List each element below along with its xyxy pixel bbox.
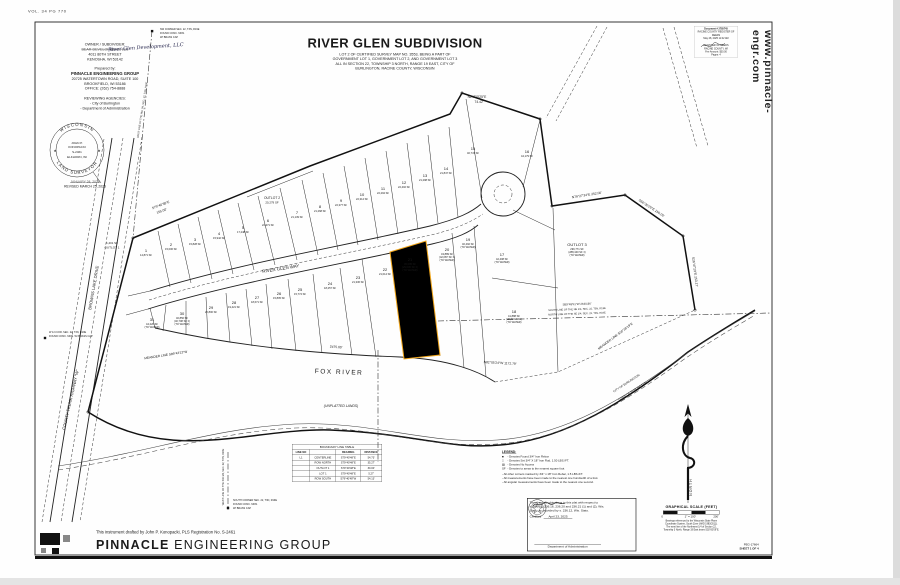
lot-area: (TO WATER) [439,258,454,262]
map-label: FOUND CONC. MON. W/ BRASS CAP [49,335,93,338]
seal-date-original: JANUARY 28, 2025 [70,180,99,184]
lot-number: 23 [356,275,361,280]
scale-label-end: 200' [713,515,718,518]
map-label: NORTH LINE OF THE SE 1/4, SEC. 22, T3N, … [548,311,606,316]
lot-number: 21 [408,257,413,262]
footer-company-name: PINNACLE ENGINEERING GROUP [96,538,331,552]
lot-area: (TO WATER) [144,325,159,329]
map-label: FOUND CONC. MON. [160,32,185,35]
street-river-glen-way: RIVER GLEN WAY [262,263,300,274]
lot-number: 12 [402,180,407,185]
svg-text:LAND SURVEYOR: LAND SURVEYOR [56,160,99,175]
lot-number: 1 [145,248,148,253]
seal-number-line: S-2461 [72,150,82,154]
lot-number: 30 [180,311,185,316]
lot-area: (TO WATER) [494,260,509,264]
lot-number: 8 [319,204,322,209]
cell-bearing: S79°40'48"W [336,476,361,481]
lot-area: 21,268 SF [314,209,326,213]
lot-area: (TO WATER) [174,322,189,326]
lot-number: 24 [328,281,333,286]
lot-area: 14,871 SF [140,253,152,257]
map-label: W/ BRASS CAP [233,507,251,510]
lot-area: (TO WATER) [460,245,475,249]
pinnacle-logo [41,548,46,553]
map-label: FOUND CONC. MON. [233,503,258,506]
stamp-line: Pages: 4 [695,53,737,56]
lot-area: 21,014 SF [379,272,391,276]
lot-area: (TO WATER) [506,320,521,324]
scale-label-mid: 1" = 100' [685,515,696,518]
lot-labels: 114,871 SF215,006 SF315,828 SF415,942 SF… [140,146,587,329]
outlot-1-area: 1,401 SF [106,241,118,245]
cell-line-no [292,476,310,481]
map-label: S89°49'51"W 2640.86' [562,301,591,306]
scale-title: GRAPHICAL SCALE (FEET) [648,505,735,509]
map-label: S56°30'20"E 250.00' [638,198,666,218]
lot-number: 22 [383,267,388,272]
plat-sheet: VOL. 34 PG 770 [0,0,900,585]
lot-number: 27 [255,295,260,300]
lot-area: 21,298 SF [419,178,431,182]
lot-number: 20 [445,247,450,252]
lot-number: 11 [381,186,386,191]
lot-number: OUTLOT 3 [567,242,587,247]
street-browns-lake-drive: BROWNS LAKE DRIVE [87,265,100,310]
lot-area: 21,139 SF [291,215,303,219]
lot-area: (TO WATER) [569,253,584,257]
lot-number: 14 [444,166,449,171]
lot-number: 3 [194,237,197,242]
lot-area: 44,179 SF [521,154,533,158]
map-label: N79°27'34"E 252.00' [572,191,603,200]
lot-number: 6 [267,218,270,223]
seal-name-line: KONOPACKI [68,145,86,149]
map-label: N82°05'24"W 1172.79' [484,360,517,366]
lot-number: 15 [471,146,476,151]
lot-number: 26 [277,291,282,296]
section-monument-icon [44,337,46,339]
cell-name: ROW SOUTH [310,476,336,481]
outlot-1-label: OUTLOT 1 [104,246,119,250]
pinnacle-logo [63,535,70,542]
map-label: W/ BRASS CAP [160,36,178,39]
pinnacle-logo [40,533,60,545]
table-row: ROW SOUTHS79°40'48"W54.13' [292,476,382,481]
lot-number: 18 [512,309,517,314]
lot-area: 20,800 SF [205,310,217,314]
lot-number: 25 [298,287,303,292]
lot-number: 13 [423,173,428,178]
south-corner-note: SOUTH CORNER SEC. 22, T3N, R19E [233,499,277,502]
lot-area: 15,006 SF [165,247,177,251]
seal-star-icon: ★ [53,149,56,153]
sheet-number: SHEET 1 OF 4 [702,547,759,551]
lot-number: 17 [500,252,505,257]
cert-department: Department of Administration [534,544,601,548]
lot-number: 10 [360,192,365,197]
lot-number: 7 [296,210,299,215]
lot-number: 2 [170,242,173,247]
certified-date: April 23, 2025 [544,515,572,519]
lot-number: 29 [209,305,214,310]
lot-area: 15,774 SF [294,292,306,296]
lot-area: 22,314 SF [356,197,368,201]
lot-number: 28 [232,300,237,305]
seal-dates: JANUARY 28, 2025 REVISED MARCH 25, 2025 [40,180,310,208]
seal-star-icon: ★ [97,149,100,153]
lot-number: 19 [466,237,471,242]
lot-area: 22,471 SF [262,223,274,227]
lot-area: 17,248 SF [237,230,249,234]
lot-area: 21,336 SF [352,280,364,284]
footer-company-rest: ENGINEERING GROUP [170,538,332,552]
lot-number: 9 [340,198,343,203]
map-label: WEST LINE OF THE SW 1/4, SEC. 22, T3N, R… [222,448,225,505]
highlighted-lot-21-outline [390,241,440,359]
lot-area: 22,402 SF [398,185,410,189]
w-quarter-corner-note: W 1/4 COR. SEC. 22, T3N, R19E [49,331,87,334]
lot-area: 22,377 SF [335,203,347,207]
website-url: www.pinnacle-engr.com [750,30,774,140]
meander-line-east: MEANDER LINE S50°38'19"E [597,322,634,351]
fox-river-label: FOX RIVER [315,368,364,377]
seal-arc-bottom: LAND SURVEYOR [56,160,99,175]
seal-date-revised: REVISED MARCH 25, 2025 [40,185,130,190]
map-label: 2475.00' [330,345,343,350]
lot-area: 18,671 SF [251,300,263,304]
owner-handwritten: River Glen Development, LLC [108,44,408,63]
footer-rule [35,556,772,559]
lot-number: 16 [525,149,530,154]
section-monument-icon [227,507,229,509]
pinnacle-logo [52,548,59,554]
lot-area: 19,421 SF [228,305,240,309]
lot-area: 22,294 SF [377,191,389,195]
seal-city-line: ELKHORN, WI [67,155,87,159]
unplatted-lands-label: (UNPLATTED LANDS) [324,404,358,408]
section-monument-icon [151,30,153,32]
lot-number: 31 [150,317,155,322]
meander-line-west: MEANDER LINE S89°43'13"W [144,350,188,361]
scale-label-0: 0 [661,515,663,518]
lot-area: 15,942 SF [213,236,225,240]
prepared-phone: OFFICE: (262) 754-8888 [40,86,170,91]
sheet-reference: PEG-17664 SHEET 1 OF 4 [702,543,872,566]
lot-area: 18,257 SF [324,286,336,290]
lot-number: 4 [218,231,221,236]
footer-company-bold: PINNACLE [96,538,170,552]
lot-area: 21,847 SF [440,171,452,175]
lot-area: 40,747 SF [467,151,479,155]
reviewing-item: - Department of Administration [40,106,170,111]
cell-distance: 54.13' [361,476,382,481]
reviewing-agencies-block: REVIEWING AGENCIES: - City of Burlington… [40,96,170,141]
lot-area: (TO WATER) [402,268,417,272]
map-label: S26°47'29"E 253.17' [691,257,699,288]
lot-area: 15,828 SF [189,242,201,246]
scale-bar [663,511,720,515]
nw-corner-note: NW CORNER SEC. 22, T3N, R19E [160,28,200,31]
lot-area: 15,805 SF [273,296,285,300]
state-seal-icon [528,499,547,518]
subtitle-line: BURLINGTON, RACINE COUNTY, WISCONSIN [270,66,520,71]
